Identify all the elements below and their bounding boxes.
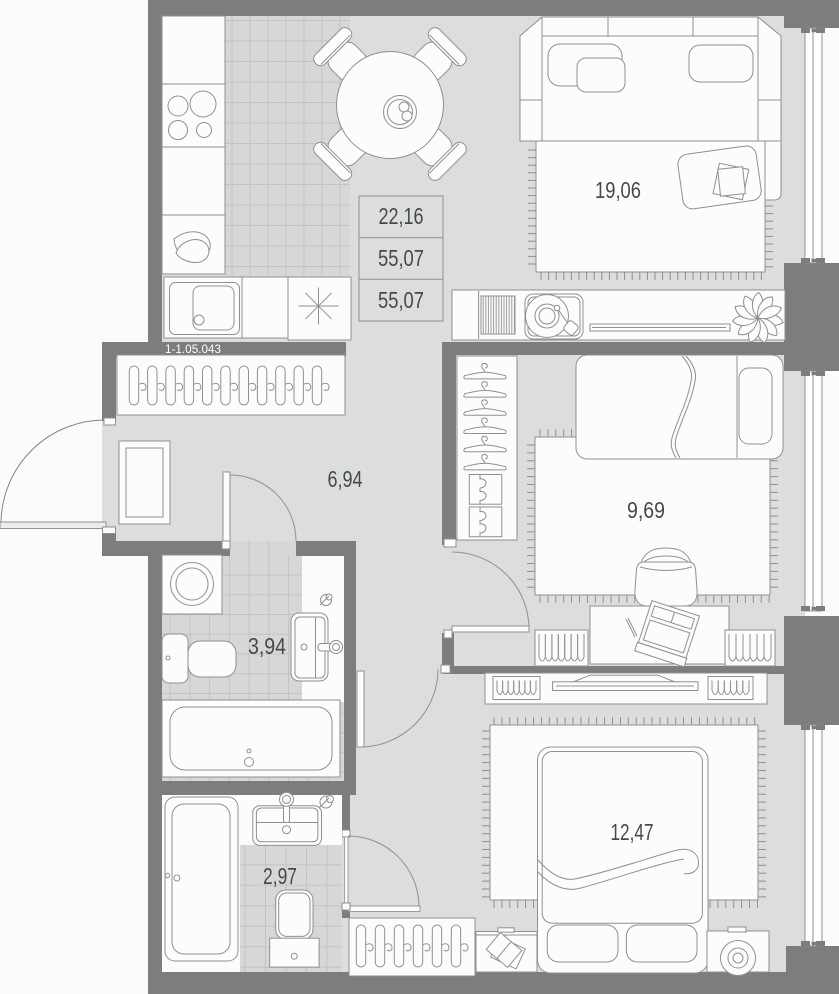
svg-text:19,06: 19,06	[595, 177, 641, 203]
svg-text:1-1.05.043: 1-1.05.043	[165, 342, 221, 356]
svg-text:22,16: 22,16	[379, 203, 424, 229]
svg-text:55,07: 55,07	[378, 287, 424, 313]
svg-text:2,97: 2,97	[263, 863, 297, 889]
svg-text:55,07: 55,07	[378, 245, 424, 271]
svg-text:12,47: 12,47	[611, 819, 654, 845]
svg-text:6,94: 6,94	[328, 466, 363, 492]
svg-text:3,94: 3,94	[248, 633, 286, 659]
svg-text:9,69: 9,69	[627, 497, 665, 523]
